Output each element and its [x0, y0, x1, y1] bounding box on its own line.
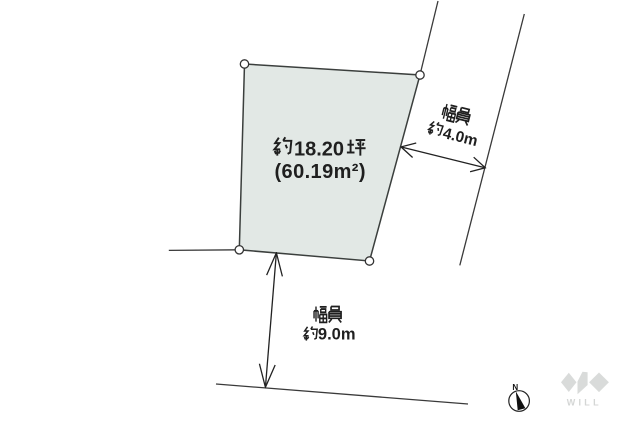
svg-text:18.20: 18.20 — [294, 139, 344, 161]
svg-text:4.0m: 4.0m — [441, 125, 479, 150]
svg-text:(60.19m²): (60.19m²) — [274, 161, 365, 183]
svg-text:9.0m: 9.0m — [318, 326, 356, 344]
svg-text:N: N — [512, 383, 518, 392]
svg-text:WILL: WILL — [567, 397, 602, 407]
